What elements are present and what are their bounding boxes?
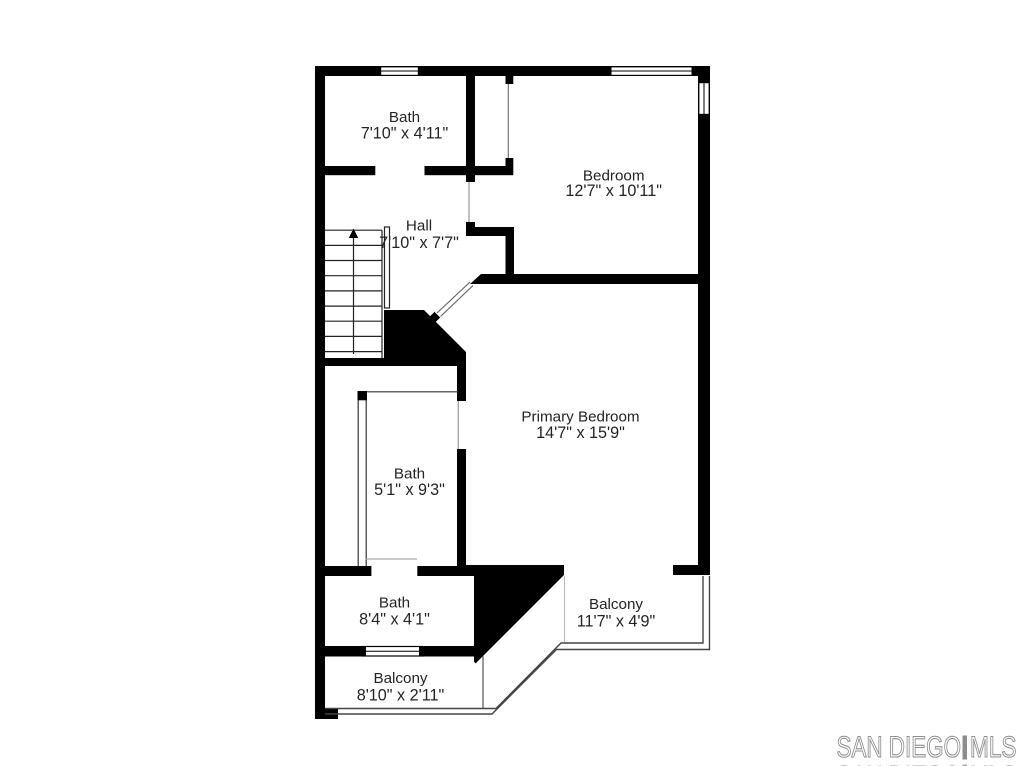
svg-text:7'10" x 7'7": 7'10" x 7'7" — [379, 234, 459, 252]
svg-text:Hall: Hall — [406, 218, 432, 235]
svg-text:Balcony: Balcony — [373, 670, 427, 687]
svg-text:SAN DIEGO: SAN DIEGO — [837, 731, 962, 764]
svg-text:Bath: Bath — [394, 466, 425, 483]
svg-text:5'1" x 9'3": 5'1" x 9'3" — [374, 481, 445, 499]
svg-text:Primary Bedroom: Primary Bedroom — [521, 409, 639, 426]
svg-text:MLS: MLS — [970, 731, 1017, 764]
svg-text:11'7" x 4'9": 11'7" x 4'9" — [577, 613, 656, 631]
svg-text:14'7" x 15'9": 14'7" x 15'9" — [536, 424, 625, 442]
svg-text:MLS: MLS — [970, 761, 1017, 766]
svg-text:8'4" x 4'1": 8'4" x 4'1" — [359, 611, 430, 629]
svg-text:SAN DIEGO: SAN DIEGO — [837, 761, 962, 766]
svg-text:8'10" x 2'11": 8'10" x 2'11" — [357, 687, 445, 705]
svg-text:7'10" x 4'11": 7'10" x 4'11" — [361, 125, 449, 143]
svg-text:Bath: Bath — [389, 109, 420, 126]
svg-text:12'7" x 10'11": 12'7" x 10'11" — [565, 182, 662, 200]
svg-text:Balcony: Balcony — [589, 596, 643, 613]
svg-text:Bath: Bath — [379, 595, 410, 612]
